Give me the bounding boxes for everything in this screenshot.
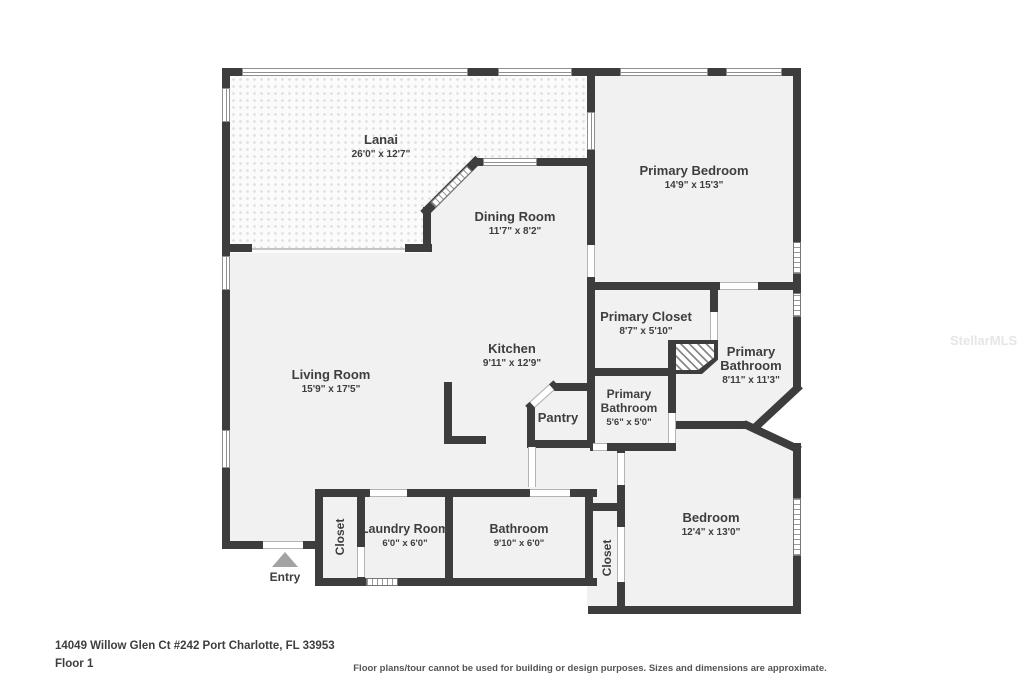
wall-segment xyxy=(527,440,590,448)
door-opening xyxy=(528,447,536,487)
entry-label: Entry xyxy=(245,570,325,584)
door-opening xyxy=(593,443,607,451)
wall-segment xyxy=(585,489,593,583)
floor-label: Floor 1 xyxy=(55,658,93,670)
window xyxy=(793,498,801,556)
shower-hatch-fill xyxy=(672,344,714,370)
window xyxy=(620,68,708,76)
window xyxy=(587,112,595,150)
entry-arrow-icon xyxy=(272,552,298,567)
wall-segment xyxy=(587,368,672,376)
door-opening xyxy=(587,245,595,277)
door-opening xyxy=(710,312,718,340)
open-edge-line xyxy=(252,248,405,250)
door-opening xyxy=(530,489,570,497)
wall-segment xyxy=(588,606,801,614)
stellar-mls-watermark: StellarMLS xyxy=(950,333,1017,348)
door-opening xyxy=(617,453,625,485)
floor-plan: Lanai 26'0" x 12'7" Dining Room 11'7" x … xyxy=(0,0,1024,682)
door-opening xyxy=(263,541,303,549)
property-address: 14049 Willow Glen Ct #242 Port Charlotte… xyxy=(55,640,335,652)
window xyxy=(222,88,230,122)
wall-segment xyxy=(587,282,801,290)
window xyxy=(498,68,572,76)
exterior-cut xyxy=(315,586,587,606)
door-opening xyxy=(617,527,625,582)
wall-segment xyxy=(793,68,801,388)
window xyxy=(222,256,230,290)
wall-segment xyxy=(222,68,230,549)
window xyxy=(483,158,537,166)
window xyxy=(726,68,782,76)
window xyxy=(242,68,468,76)
wall-segment xyxy=(587,290,595,447)
window xyxy=(366,578,398,586)
door-opening xyxy=(370,489,407,497)
window xyxy=(793,242,801,274)
door-opening xyxy=(720,282,758,290)
door-opening xyxy=(357,547,365,577)
door-opening xyxy=(668,413,676,443)
wall-segment xyxy=(445,489,453,586)
window xyxy=(222,430,230,468)
floor-plan-page: Lanai 26'0" x 12'7" Dining Room 11'7" x … xyxy=(0,0,1024,682)
wall-segment xyxy=(710,288,718,312)
disclaimer-text: Floor plans/tour cannot be used for buil… xyxy=(340,663,840,674)
window xyxy=(793,293,801,317)
wall-segment xyxy=(444,382,452,444)
wall-segment xyxy=(670,421,747,429)
